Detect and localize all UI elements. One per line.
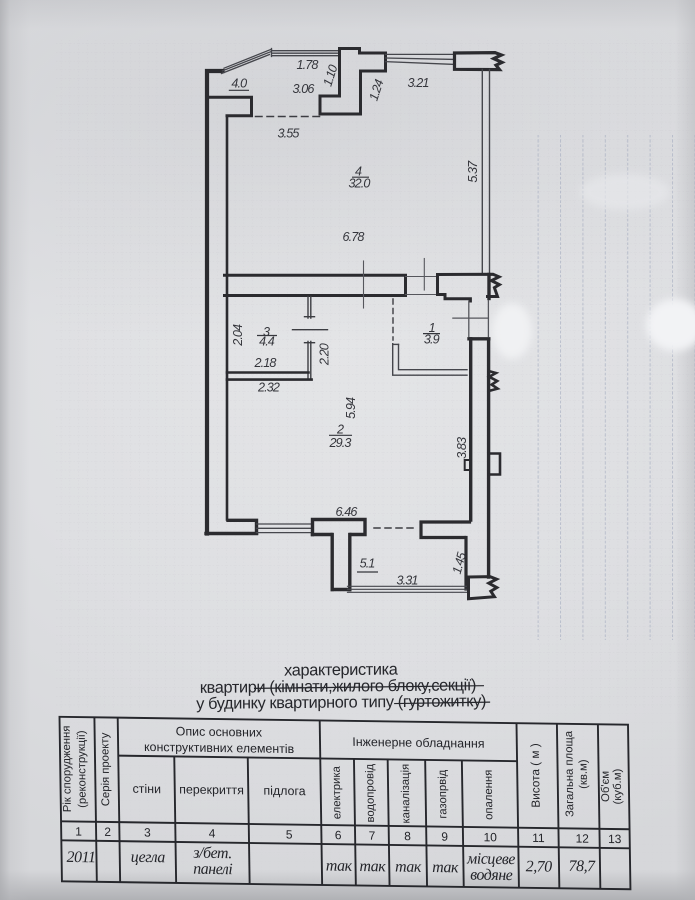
svg-text:3.21: 3.21 [408, 76, 429, 90]
svg-text:так: так [326, 858, 353, 875]
svg-text:Інженерне обладнання: Інженерне обладнання [352, 735, 484, 751]
svg-text:стіни: стіни [132, 782, 161, 796]
svg-text:8: 8 [404, 829, 411, 843]
svg-text:5.1: 5.1 [360, 557, 375, 571]
svg-text:2011: 2011 [66, 849, 95, 866]
svg-text:панелі: панелі [193, 861, 232, 879]
svg-text:3.9: 3.9 [424, 333, 440, 347]
svg-text:електрика: електрика [331, 765, 344, 819]
svg-text:опалення: опалення [483, 770, 496, 820]
svg-text:перекриття: перекриття [179, 782, 244, 797]
svg-text:2.32: 2.32 [257, 381, 280, 395]
svg-text:4.0: 4.0 [231, 77, 247, 91]
svg-text:4: 4 [209, 826, 216, 840]
svg-text:12: 12 [575, 832, 589, 846]
svg-text:Серія проекту: Серія проекту [99, 732, 112, 806]
svg-text:(реконструкції): (реконструкції) [76, 730, 89, 808]
svg-text:цегла: цегла [131, 849, 166, 866]
svg-text:2: 2 [336, 423, 344, 437]
svg-text:3: 3 [144, 825, 151, 839]
svg-text:3.83: 3.83 [455, 437, 469, 459]
svg-text:5.94: 5.94 [344, 397, 358, 419]
svg-text:каналізація: каналізація [400, 764, 413, 824]
svg-text:Об'єм: Об'єм [600, 771, 612, 802]
svg-text:2: 2 [104, 825, 111, 839]
svg-text:7: 7 [369, 829, 376, 843]
svg-text:5.37: 5.37 [466, 160, 480, 183]
svg-text:78,7: 78,7 [568, 858, 596, 875]
svg-text:так: так [395, 858, 422, 875]
svg-text:так: так [432, 859, 459, 876]
svg-text:Загальна площа: Загальна площа [563, 730, 576, 817]
svg-text:(куб.м): (куб.м) [612, 768, 625, 804]
svg-text:32.0: 32.0 [349, 177, 371, 191]
svg-text:1.78: 1.78 [297, 58, 319, 72]
svg-text:13: 13 [608, 832, 622, 846]
svg-text:6.78: 6.78 [343, 230, 365, 244]
svg-text:газопрвід: газопрвід [437, 769, 450, 818]
svg-text:2,70: 2,70 [526, 858, 553, 875]
svg-text:9: 9 [441, 830, 448, 844]
svg-text:Рік спорудження: Рік спорудження [61, 726, 74, 813]
svg-text:конструктивних елементів: конструктивних елементів [144, 740, 295, 756]
svg-text:6: 6 [335, 828, 342, 842]
svg-text:Опис основних: Опис основних [176, 724, 263, 739]
svg-text:водопровід: водопровід [364, 763, 377, 822]
svg-text:1: 1 [75, 825, 82, 839]
svg-text:2.20: 2.20 [317, 343, 331, 366]
svg-text:так: так [359, 858, 386, 875]
svg-text:підлога: підлога [263, 784, 305, 799]
svg-text:місцеве: місцеве [466, 850, 515, 868]
svg-text:Висота ( м ): Висота ( м ) [528, 743, 543, 808]
svg-text:11: 11 [532, 831, 545, 845]
svg-text:водяне: водяне [470, 867, 513, 885]
svg-text:2.18: 2.18 [254, 356, 277, 370]
svg-text:3.06: 3.06 [293, 82, 315, 96]
svg-text:6.46: 6.46 [336, 505, 358, 519]
svg-text:(кв.м): (кв.м) [578, 759, 590, 789]
svg-text:3.31: 3.31 [397, 574, 418, 588]
svg-text:з/бет.: з/бет. [192, 845, 232, 863]
svg-text:10: 10 [483, 830, 497, 844]
svg-text:3.55: 3.55 [278, 127, 301, 141]
svg-text:5: 5 [286, 827, 293, 841]
svg-text:4.4: 4.4 [259, 335, 275, 349]
svg-text:29.3: 29.3 [329, 436, 352, 450]
svg-text:2.04: 2.04 [231, 324, 245, 347]
